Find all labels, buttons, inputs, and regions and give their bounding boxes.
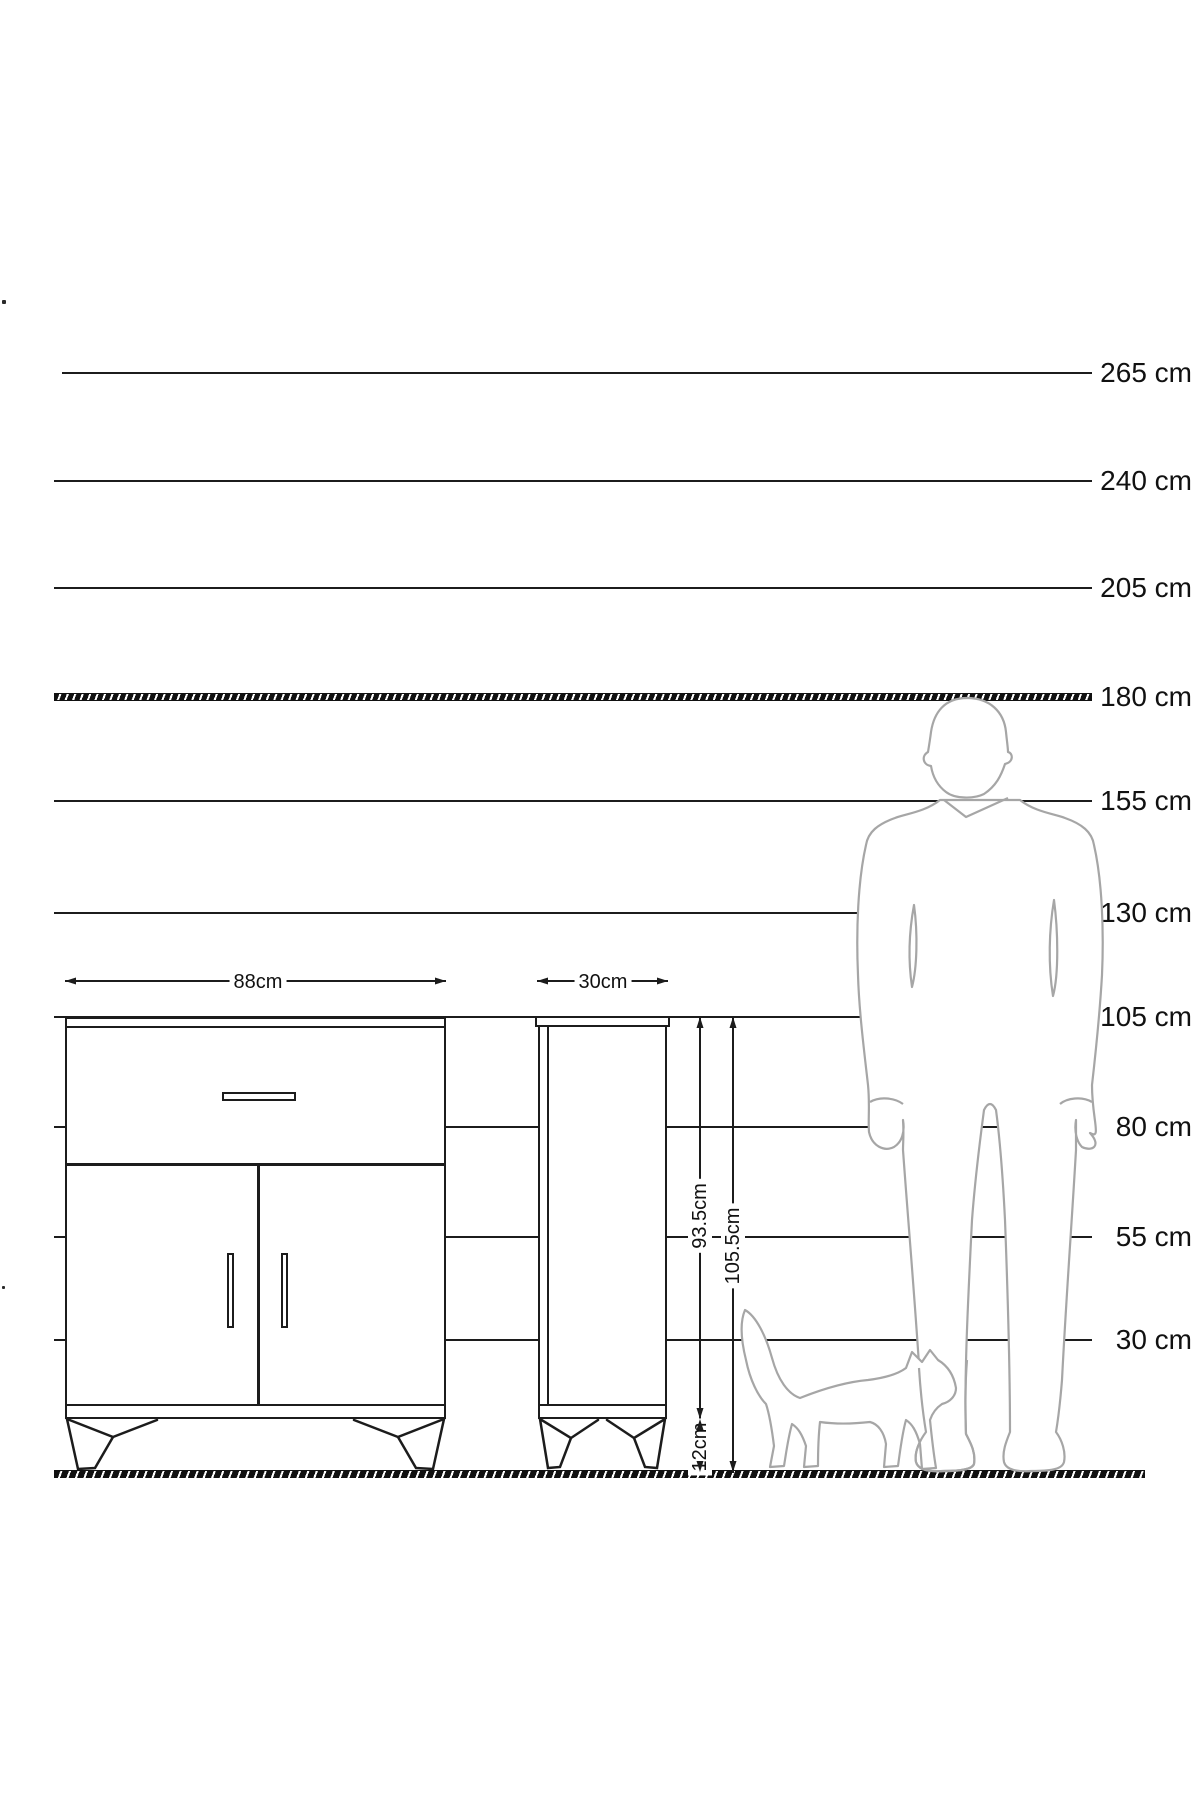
diagram-canvas: 265 cm240 cm205 cm180 cm155 cm130 cm105 … — [0, 0, 1200, 1800]
man-silhouette — [857, 698, 1102, 1471]
front-cabinet-legs — [67, 1419, 444, 1469]
dimension-arrowheads — [65, 978, 737, 1473]
side-cabinet-legs — [540, 1419, 665, 1468]
figures-overlay — [0, 0, 1200, 1800]
